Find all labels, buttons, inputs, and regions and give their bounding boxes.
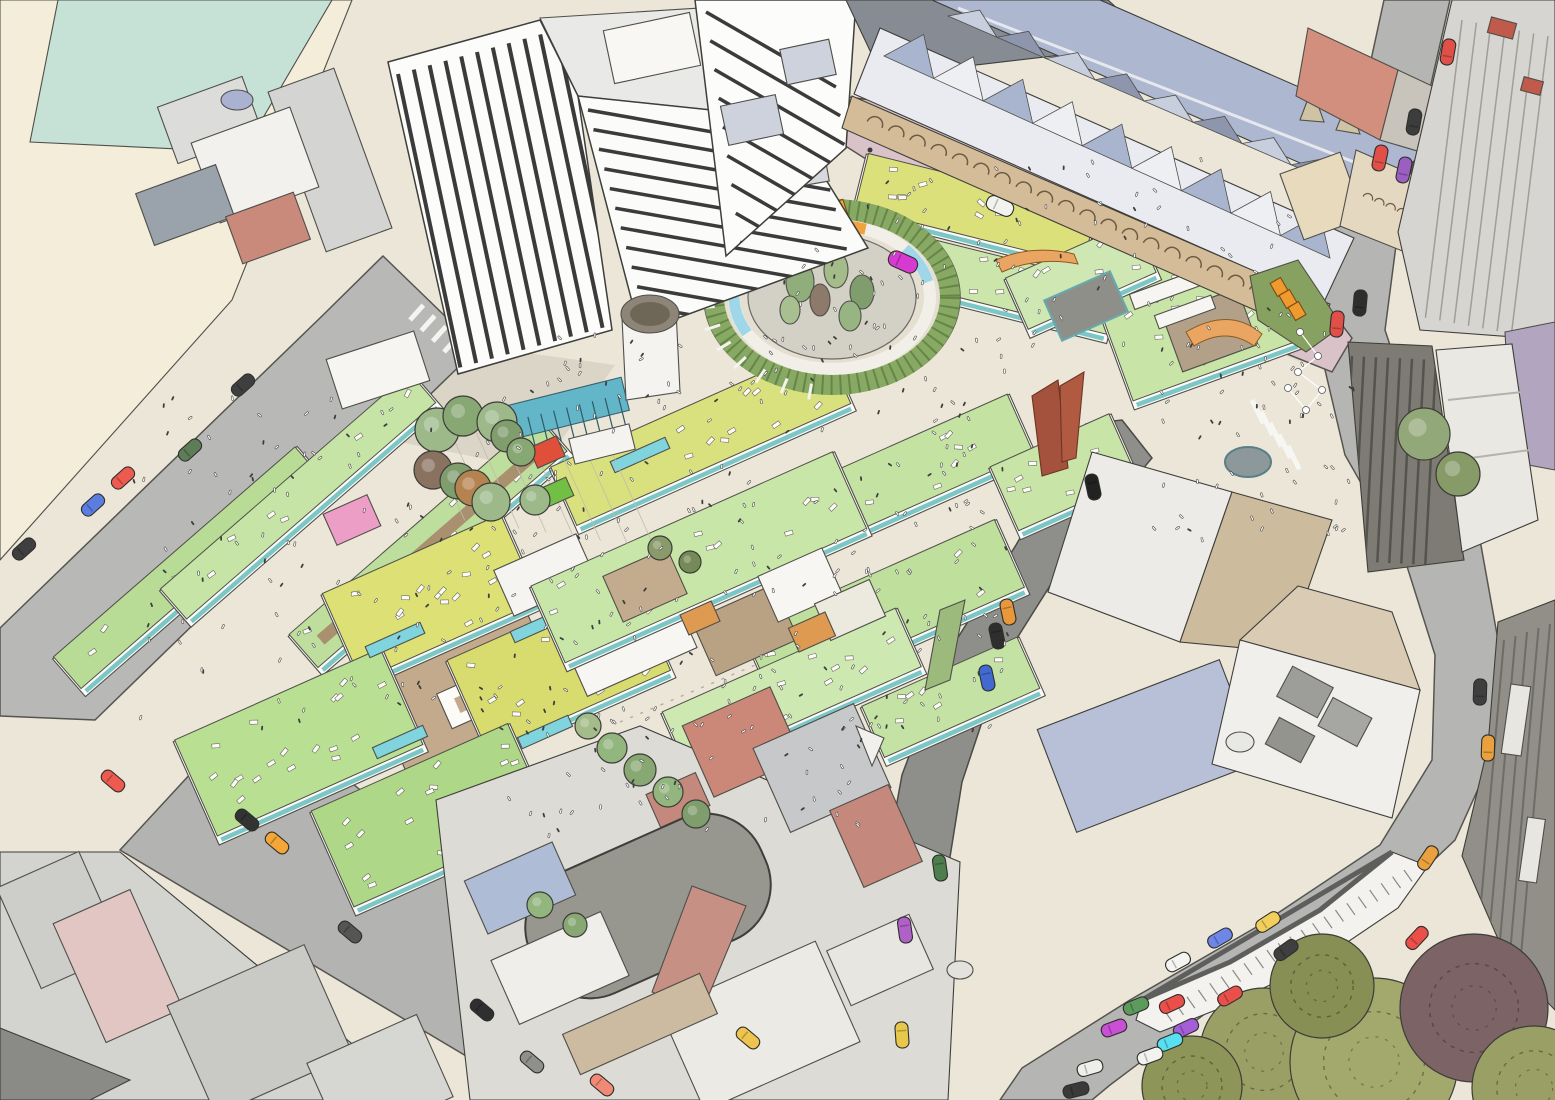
- roof-furniture: [898, 695, 906, 699]
- person-mark: [580, 358, 582, 363]
- person-mark: [940, 463, 942, 468]
- roof-furniture: [888, 195, 896, 199]
- person-mark: [678, 784, 680, 789]
- tree: [563, 913, 587, 937]
- person-mark: [148, 637, 150, 642]
- person-mark: [836, 812, 838, 817]
- person-mark: [867, 567, 869, 572]
- person-mark: [783, 280, 785, 285]
- roof-furniture: [980, 257, 988, 262]
- tree: [597, 733, 627, 763]
- person-mark: [579, 363, 581, 368]
- person-mark: [728, 699, 730, 704]
- tree-highlight: [480, 491, 493, 504]
- person-mark: [1001, 467, 1003, 472]
- tree-highlight: [568, 918, 576, 926]
- roof-furniture: [212, 743, 220, 748]
- play-structure-node: [1303, 407, 1310, 414]
- person-mark: [1003, 369, 1005, 374]
- person-mark: [1000, 354, 1002, 359]
- person-mark: [973, 677, 975, 682]
- play-structure-node: [1295, 369, 1302, 376]
- person-mark: [1256, 404, 1258, 409]
- roof-furniture: [430, 785, 438, 789]
- person-mark: [220, 536, 222, 541]
- person-mark: [519, 433, 521, 438]
- shape: [221, 90, 253, 110]
- person-mark: [928, 621, 931, 626]
- tree-highlight: [683, 555, 691, 563]
- tree-highlight: [688, 806, 698, 816]
- person-mark: [946, 444, 948, 449]
- person-mark: [806, 770, 808, 775]
- roof-furniture: [845, 656, 853, 660]
- tree: [682, 800, 710, 828]
- person-mark: [943, 264, 945, 269]
- roof-furniture: [462, 572, 471, 577]
- person-mark: [1263, 405, 1266, 410]
- masterplan-illustration: [0, 0, 1555, 1100]
- roof-furniture: [1132, 265, 1140, 270]
- tree: [653, 777, 683, 807]
- roof-furniture: [501, 744, 509, 748]
- roof-furniture: [467, 663, 475, 668]
- person-mark: [1063, 165, 1065, 170]
- person-mark: [555, 476, 557, 481]
- tree-highlight: [1445, 461, 1460, 476]
- tree-highlight: [526, 491, 537, 502]
- person-mark: [782, 337, 784, 342]
- person-mark: [1060, 254, 1062, 259]
- person-mark: [1094, 220, 1096, 225]
- roof-furniture: [541, 637, 549, 642]
- person-mark: [428, 586, 430, 591]
- person-mark: [937, 717, 939, 722]
- car: [1329, 310, 1344, 337]
- person-mark: [634, 636, 637, 641]
- tree-highlight: [1408, 418, 1426, 436]
- roof-furniture: [969, 289, 977, 293]
- roof-furniture: [250, 720, 258, 724]
- tree-highlight: [497, 426, 508, 437]
- person-mark: [721, 464, 723, 469]
- person-mark: [1289, 419, 1291, 424]
- person-mark: [799, 302, 801, 307]
- shape: [1226, 732, 1254, 752]
- person-mark: [555, 470, 557, 475]
- person-mark: [1038, 309, 1041, 314]
- tree: [520, 485, 550, 515]
- person-mark: [409, 505, 411, 510]
- person-mark: [724, 679, 726, 684]
- tree-highlight: [422, 459, 435, 472]
- roof-furniture: [1155, 335, 1163, 339]
- tree: [443, 396, 483, 436]
- person-mark: [617, 518, 619, 523]
- person-mark: [658, 399, 660, 404]
- roof-furniture: [954, 445, 962, 449]
- person-mark: [1323, 332, 1325, 337]
- roof-furniture: [512, 712, 520, 716]
- person-mark: [633, 783, 635, 788]
- roof-furniture: [1029, 461, 1037, 465]
- play-structure-node: [1315, 353, 1322, 360]
- tree: [1436, 452, 1480, 496]
- person-mark: [198, 571, 200, 576]
- person-mark: [764, 817, 766, 822]
- tree-highlight: [462, 477, 475, 490]
- person-mark: [598, 620, 600, 625]
- person-mark: [202, 577, 204, 582]
- tree-highlight: [603, 739, 614, 750]
- roof-furniture: [995, 658, 1003, 662]
- tree: [507, 438, 535, 466]
- tree: [472, 483, 510, 521]
- person-mark: [593, 414, 595, 419]
- person-mark: [488, 594, 490, 599]
- tree-highlight: [630, 760, 641, 771]
- person-mark: [975, 338, 977, 343]
- car: [1473, 679, 1487, 705]
- masterplan-stage: [0, 0, 1555, 1100]
- person-mark: [598, 713, 600, 718]
- roof-furniture: [721, 438, 729, 443]
- person-mark: [1268, 327, 1270, 332]
- tree: [575, 713, 601, 739]
- person-mark: [1004, 641, 1006, 646]
- shape: [839, 301, 861, 331]
- shape: [780, 296, 800, 324]
- shape: [947, 961, 973, 979]
- bollard: [868, 148, 873, 153]
- play-structure-node: [1285, 385, 1292, 392]
- car: [895, 1022, 910, 1049]
- person-mark: [865, 569, 867, 574]
- play-structure-node: [1319, 387, 1326, 394]
- roof-furniture: [1095, 269, 1103, 274]
- person-mark: [585, 535, 587, 540]
- tree-highlight: [485, 410, 499, 424]
- person-mark: [760, 655, 762, 660]
- person-mark: [1045, 204, 1047, 209]
- person-mark: [701, 500, 703, 505]
- person-mark: [1196, 479, 1198, 484]
- roof-furniture: [996, 289, 1004, 294]
- tree: [1398, 408, 1450, 460]
- tree-highlight: [451, 404, 465, 418]
- person-mark: [182, 619, 184, 624]
- roof-furniture: [895, 719, 903, 723]
- person-mark: [395, 647, 398, 652]
- person-mark: [964, 615, 966, 620]
- person-mark: [231, 396, 233, 401]
- tree: [624, 754, 656, 786]
- tree-highlight: [580, 718, 589, 727]
- person-mark: [813, 346, 815, 351]
- person-mark: [667, 382, 669, 387]
- shape: [630, 302, 670, 326]
- roof-furniture: [865, 500, 874, 505]
- play-structure-node: [1297, 329, 1304, 336]
- tree: [527, 892, 553, 918]
- roof-furniture: [441, 600, 449, 604]
- person-mark: [262, 533, 265, 538]
- car: [1352, 289, 1367, 316]
- car: [1481, 735, 1495, 761]
- roof-furniture: [898, 195, 906, 200]
- person-mark: [1187, 226, 1190, 231]
- tree-highlight: [532, 897, 541, 906]
- person-mark: [886, 694, 888, 699]
- shape: [810, 284, 830, 316]
- person-mark: [402, 682, 404, 687]
- person-mark: [201, 667, 203, 672]
- person-mark: [594, 333, 596, 338]
- roof-furniture: [889, 167, 897, 171]
- person-mark: [577, 406, 579, 411]
- person-mark: [273, 488, 275, 493]
- person-mark: [600, 805, 602, 810]
- roof-furniture: [401, 596, 409, 600]
- person-mark: [1133, 253, 1135, 258]
- tree: [679, 551, 701, 573]
- person-mark: [917, 294, 919, 299]
- person-mark: [873, 291, 875, 296]
- person-mark: [1335, 500, 1337, 505]
